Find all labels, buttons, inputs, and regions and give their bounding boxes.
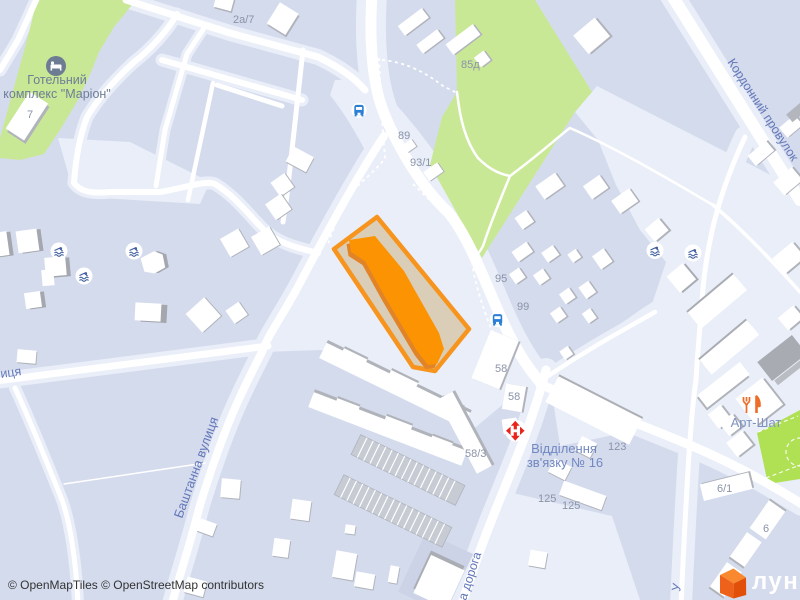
svg-text:95: 95 [495,273,507,285]
svg-text:зв'язку № 16: зв'язку № 16 [527,455,603,470]
svg-text:58/3: 58/3 [465,448,486,460]
svg-text:6: 6 [763,523,769,535]
svg-text:Готельний: Готельний [27,73,86,87]
svg-text:Відділення: Відділення [531,441,597,456]
svg-text:93/1: 93/1 [410,157,431,169]
svg-text:125: 125 [538,493,556,505]
svg-text:58: 58 [508,391,520,403]
svg-text:6/1: 6/1 [717,483,732,495]
svg-text:99: 99 [517,301,529,313]
svg-text:Арт-Шат: Арт-Шат [731,415,782,430]
svg-text:58: 58 [495,363,507,375]
svg-text:иця: иця [0,364,22,381]
svg-text:7: 7 [27,109,33,121]
svg-text:89: 89 [398,130,410,142]
svg-text:лун: лун [752,568,799,595]
svg-text:125: 125 [562,500,580,512]
svg-text:123: 123 [608,441,626,453]
svg-text:2а/7: 2а/7 [233,14,254,26]
svg-text:© OpenMapTiles © OpenStreetMap: © OpenMapTiles © OpenStreetMap contribut… [8,578,264,592]
svg-text:комплекс "Маріон": комплекс "Маріон" [3,87,110,101]
svg-text:85д: 85д [461,59,480,71]
